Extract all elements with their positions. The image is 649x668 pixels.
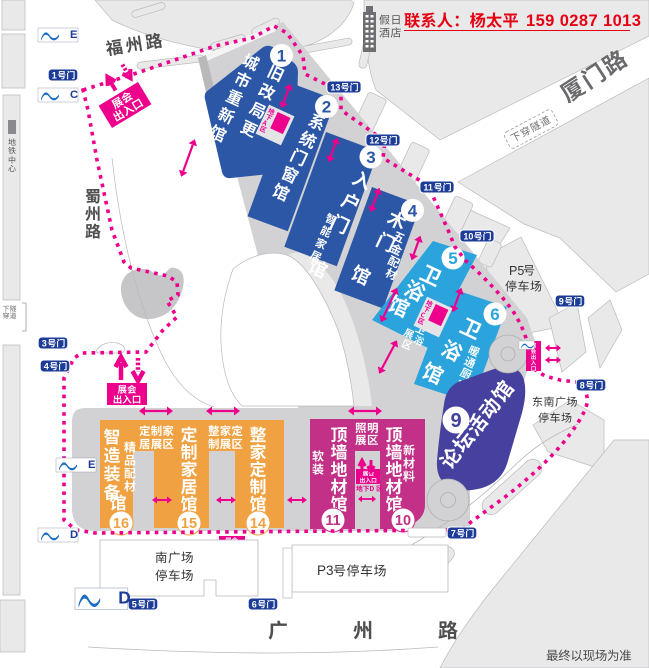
svg-text:16: 16 xyxy=(113,516,129,532)
svg-text:P5: P5 xyxy=(509,264,524,278)
svg-text:C: C xyxy=(70,89,78,101)
svg-text:6: 6 xyxy=(252,599,257,609)
svg-text:P3: P3 xyxy=(317,563,334,578)
svg-text:6: 6 xyxy=(490,305,499,324)
svg-text:4: 4 xyxy=(44,361,49,371)
svg-text:9: 9 xyxy=(559,296,564,306)
svg-text:10: 10 xyxy=(395,513,411,529)
svg-text:8: 8 xyxy=(580,380,585,390)
svg-text:13: 13 xyxy=(330,82,340,92)
svg-text:D: D xyxy=(118,588,130,608)
svg-text:5: 5 xyxy=(448,249,457,268)
svg-text:D: D xyxy=(70,529,78,541)
svg-text:3: 3 xyxy=(366,148,375,167)
svg-text:5: 5 xyxy=(132,599,137,609)
svg-text:159 0287 1013: 159 0287 1013 xyxy=(526,12,641,30)
svg-text:3: 3 xyxy=(42,338,47,348)
svg-text:11: 11 xyxy=(423,182,433,192)
svg-text:1: 1 xyxy=(277,47,286,66)
svg-text:11: 11 xyxy=(325,513,340,529)
svg-text:1: 1 xyxy=(52,70,57,80)
svg-text:4: 4 xyxy=(408,201,418,220)
svg-text:E: E xyxy=(70,29,78,41)
svg-text:10: 10 xyxy=(463,231,473,241)
svg-text:15: 15 xyxy=(181,516,197,532)
svg-text:2: 2 xyxy=(322,98,331,117)
svg-text:9: 9 xyxy=(450,410,461,432)
svg-text:E: E xyxy=(88,459,96,471)
svg-text:7: 7 xyxy=(451,528,456,538)
svg-text:14: 14 xyxy=(250,516,266,532)
svg-text:12: 12 xyxy=(369,135,379,145)
